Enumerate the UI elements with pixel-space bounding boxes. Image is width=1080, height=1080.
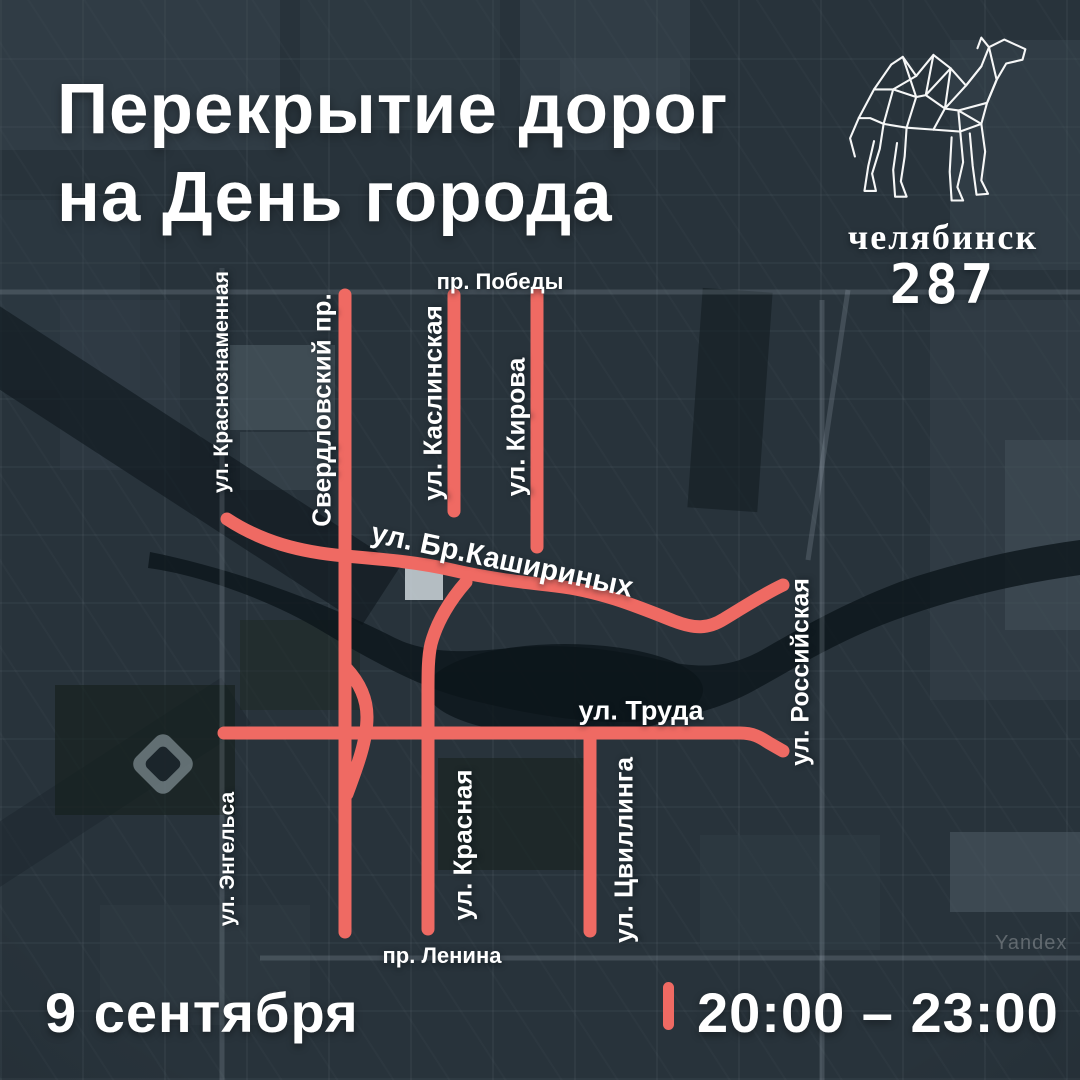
- street-label-sverdlovsky: Свердловский пр.: [307, 293, 338, 526]
- street-label-krasnaya: ул. Красная: [448, 769, 479, 920]
- street-label-lenina: пр. Ленина: [383, 943, 502, 969]
- poster-title: Перекрытие дорог на День города: [57, 66, 728, 242]
- street-label-engelsa: ул. Энгельса: [216, 792, 240, 926]
- camel-icon: [836, 30, 1050, 212]
- street-label-kaslinskaya: ул. Каслинская: [418, 305, 449, 501]
- street-label-rossiyskaya: ул. Российская: [787, 578, 816, 766]
- closure-time-range: 20:00 – 23:00: [697, 980, 1059, 1045]
- event-date: 9 сентября: [45, 980, 359, 1045]
- street-label-krasnoznamennaya: ул. Краснознаменная: [210, 271, 234, 493]
- city-logo: челябинск 287: [830, 30, 1056, 312]
- poster-title-line1: Перекрытие дорог: [57, 66, 728, 154]
- logo-city-name: челябинск: [830, 216, 1056, 258]
- closed-road-truda: [224, 733, 783, 751]
- poster-title-line2: на День города: [57, 154, 728, 242]
- street-label-pobedy: пр. Победы: [437, 269, 564, 295]
- street-label-truda: ул. Труда: [579, 696, 704, 727]
- road-closure-poster: Yandex пр. Победы ул. Краснознаменная Св…: [0, 0, 1080, 1080]
- logo-anniversary-number: 287: [830, 258, 1056, 312]
- street-label-tsvillinga: ул. Цвиллинга: [609, 757, 640, 943]
- street-label-kirova: ул. Кирова: [501, 358, 532, 497]
- time-accent-bar: [663, 982, 674, 1030]
